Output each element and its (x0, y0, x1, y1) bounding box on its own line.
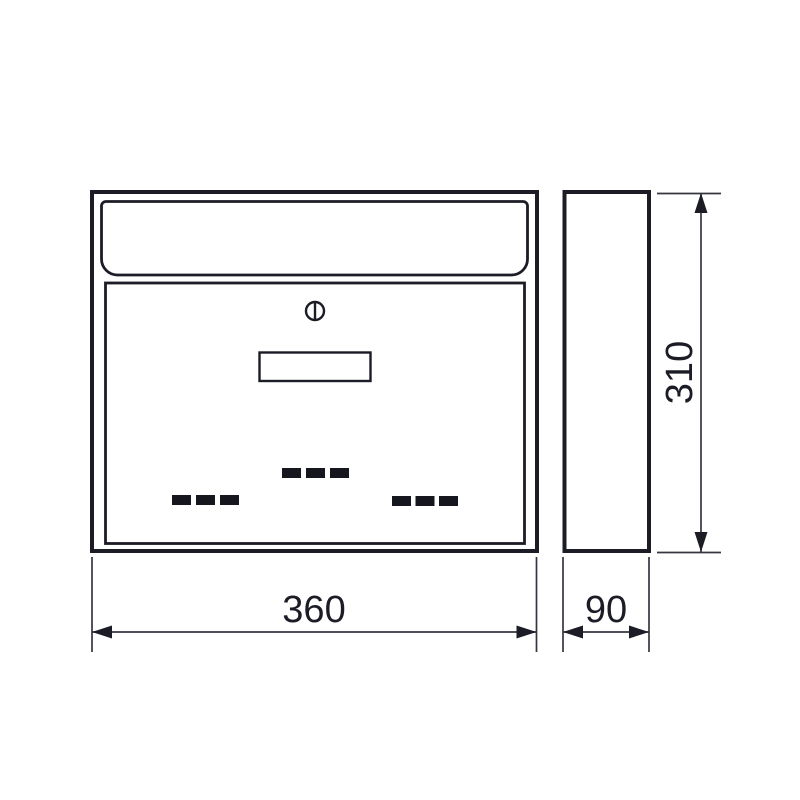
lock-icon (306, 302, 324, 320)
arrow-up-icon (695, 193, 708, 213)
vent-slots-right (392, 496, 458, 506)
arrow-left-icon (563, 626, 583, 639)
vent-slots-left (172, 495, 239, 505)
vent-dash (196, 495, 215, 505)
drawing-canvas: 360 90 310 (0, 0, 800, 800)
height-dimension-label: 310 (659, 341, 701, 404)
width-dimension: 360 (92, 557, 537, 652)
vent-dash (282, 468, 301, 478)
mail-flap (102, 202, 528, 276)
mailbox-technical-drawing: 360 90 310 (0, 0, 800, 800)
vent-dash (439, 496, 458, 506)
vent-dash (330, 468, 349, 478)
arrow-left-icon (92, 626, 112, 639)
width-dimension-label: 360 (282, 589, 345, 631)
arrow-right-icon (517, 626, 537, 639)
depth-dimension-label: 90 (585, 589, 627, 631)
front-view-outline (92, 192, 537, 551)
door-panel (106, 283, 525, 544)
vent-dash (392, 496, 411, 506)
front-view (92, 192, 537, 551)
height-dimension: 310 (657, 193, 721, 553)
arrow-right-icon (629, 626, 649, 639)
side-view (565, 192, 650, 551)
nameplate (260, 353, 371, 382)
depth-dimension: 90 (563, 557, 649, 652)
vent-slots-middle (282, 468, 349, 478)
vent-dash (416, 496, 435, 506)
vent-dash (172, 495, 191, 505)
vent-dash (220, 495, 239, 505)
vent-dash (306, 468, 325, 478)
arrow-down-icon (695, 532, 708, 552)
side-view-outline (565, 192, 650, 551)
